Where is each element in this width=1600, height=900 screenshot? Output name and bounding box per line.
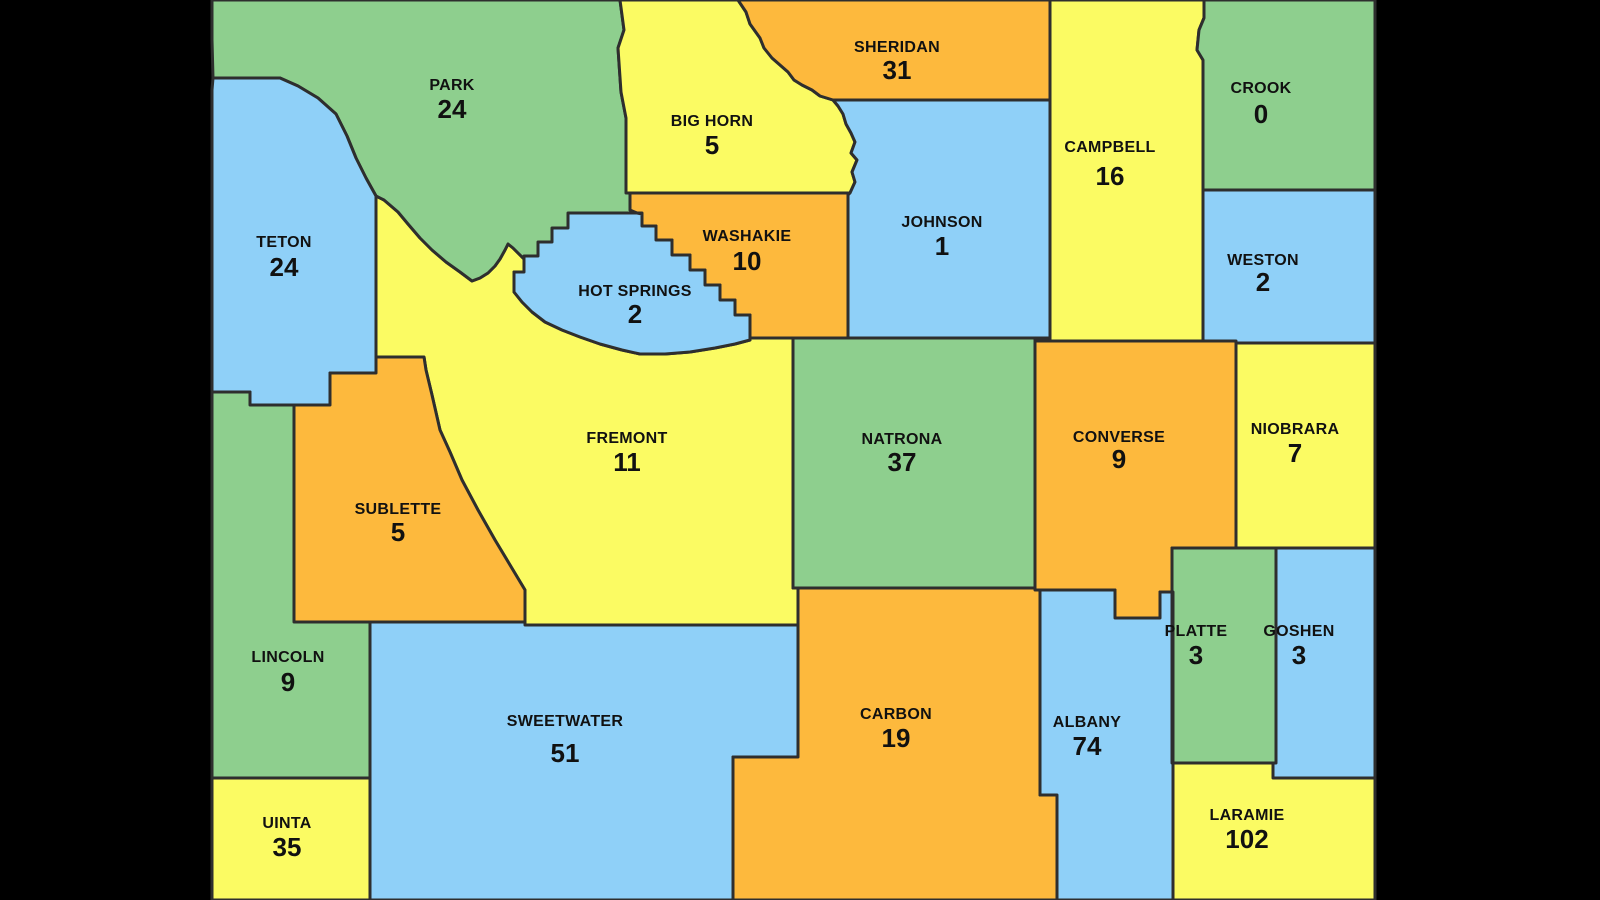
county-label-washakie: WASHAKIE <box>703 228 792 245</box>
county-value-platte: 3 <box>1189 640 1203 670</box>
county-value-sublette: 5 <box>391 517 405 547</box>
county-value-niobrara: 7 <box>1288 438 1302 468</box>
county-label-niobrara: NIOBRARA <box>1251 421 1340 438</box>
county-label-campbell: CAMPBELL <box>1064 139 1155 156</box>
county-label-johnson: JOHNSON <box>901 214 982 231</box>
county-platte[interactable] <box>1172 548 1276 763</box>
county-label-goshen: GOSHEN <box>1263 623 1334 640</box>
county-value-hotsprings: 2 <box>628 299 642 329</box>
county-label-albany: ALBANY <box>1053 714 1121 731</box>
county-niobrara[interactable] <box>1236 343 1375 548</box>
county-value-bighorn: 5 <box>705 130 719 160</box>
county-label-laramie: LARAMIE <box>1210 807 1285 824</box>
county-value-uinta: 35 <box>273 832 302 862</box>
county-value-johnson: 1 <box>935 231 949 261</box>
county-map-svg: FREMONT11PARK24TETON24BIG HORN5SHERIDAN3… <box>0 0 1600 900</box>
county-goshen[interactable] <box>1273 548 1375 778</box>
county-value-laramie: 102 <box>1225 824 1268 854</box>
county-value-converse: 9 <box>1112 444 1126 474</box>
county-label-hotsprings: HOT SPRINGS <box>578 283 692 300</box>
county-value-fremont: 11 <box>613 447 641 477</box>
county-value-lincoln: 9 <box>281 667 295 697</box>
county-value-goshen: 3 <box>1292 640 1306 670</box>
county-label-fremont: FREMONT <box>586 430 667 447</box>
county-value-albany: 74 <box>1073 731 1102 761</box>
county-value-sweetwater: 51 <box>551 738 580 768</box>
county-value-washakie: 10 <box>733 246 762 276</box>
county-value-teton: 24 <box>270 252 299 282</box>
county-label-uinta: UINTA <box>262 815 311 832</box>
county-value-campbell: 16 <box>1096 161 1125 191</box>
county-label-park: PARK <box>429 77 474 94</box>
county-label-carbon: CARBON <box>860 706 932 723</box>
county-label-platte: PLATTE <box>1165 623 1228 640</box>
county-campbell[interactable] <box>1050 0 1204 343</box>
county-label-crook: CROOK <box>1230 80 1291 97</box>
county-value-natrona: 37 <box>888 447 917 477</box>
county-value-crook: 0 <box>1254 99 1268 129</box>
county-label-sweetwater: SWEETWATER <box>507 713 624 730</box>
county-label-bighorn: BIG HORN <box>671 113 753 130</box>
county-laramie[interactable] <box>1173 763 1375 900</box>
county-label-sheridan: SHERIDAN <box>854 39 940 56</box>
county-value-park: 24 <box>438 94 467 124</box>
wyoming-county-map: FREMONT11PARK24TETON24BIG HORN5SHERIDAN3… <box>0 0 1600 900</box>
county-value-weston: 2 <box>1256 267 1270 297</box>
county-albany[interactable] <box>1040 590 1173 900</box>
county-label-teton: TETON <box>256 234 311 251</box>
county-label-lincoln: LINCOLN <box>251 649 324 666</box>
county-value-sheridan: 31 <box>883 55 912 85</box>
county-label-sublette: SUBLETTE <box>355 501 442 518</box>
county-label-natrona: NATRONA <box>862 431 943 448</box>
county-value-carbon: 19 <box>882 723 911 753</box>
